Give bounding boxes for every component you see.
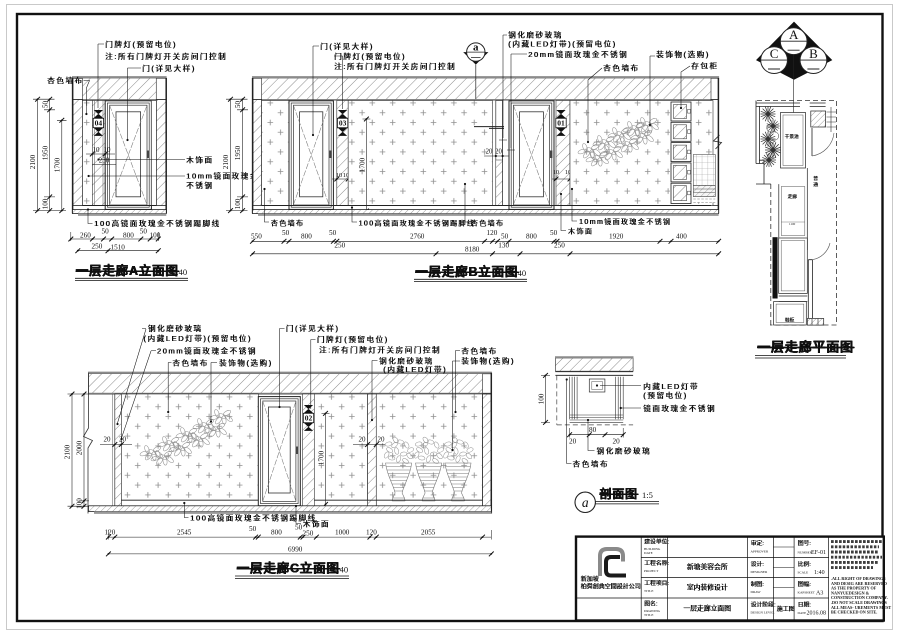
svg-text:PROJECT: PROJECT (644, 569, 659, 573)
svg-text:木饰面: 木饰面 (568, 227, 593, 236)
svg-text:存包柜: 存包柜 (691, 61, 718, 71)
svg-text:新塘美容会所: 新塘美容会所 (687, 562, 728, 571)
svg-text:杏色墙布: 杏色墙布 (471, 219, 505, 228)
svg-text:DATE: DATE (644, 551, 653, 555)
svg-text:10mm镜面玫瑰金不锈钢: 10mm镜面玫瑰金不锈钢 (579, 217, 671, 226)
svg-text:DESIGNER: DESIGNER (751, 570, 769, 574)
svg-text:a: a (582, 495, 589, 510)
svg-text:走廊: 走廊 (788, 193, 798, 200)
svg-text:(预留电位): (预留电位) (643, 390, 688, 400)
svg-text:800: 800 (526, 233, 537, 241)
svg-text:50: 50 (249, 525, 257, 533)
svg-text:设计阶段:: 设计阶段: (751, 601, 776, 609)
svg-text:20: 20 (359, 436, 367, 444)
svg-text:1700: 1700 (318, 450, 326, 465)
svg-text:木饰面: 木饰面 (186, 155, 213, 165)
svg-text:20mm镜面玫瑰金不锈钢: 20mm镜面玫瑰金不锈钢 (528, 49, 628, 59)
svg-text:注:所有门牌灯开关房间门控制: 注:所有门牌灯开关房间门控制 (105, 51, 227, 61)
svg-text:120: 120 (366, 529, 377, 537)
svg-text:TITLE: TITLE (644, 589, 653, 593)
svg-text:EF-01: EF-01 (811, 550, 826, 556)
svg-text:装饰物(选购): 装饰物(选购) (656, 49, 710, 59)
svg-text:250: 250 (554, 242, 565, 250)
svg-text:钢化磨砂玻璃: 钢化磨砂玻璃 (596, 446, 651, 456)
svg-text:杏色墙布: 杏色墙布 (271, 219, 305, 228)
svg-text:工程项目:: 工程项目: (644, 579, 669, 587)
svg-text:400: 400 (676, 233, 687, 241)
svg-text:250: 250 (303, 530, 314, 538)
svg-text:50: 50 (234, 101, 242, 109)
svg-text:一层走廊立面图: 一层走廊立面图 (683, 604, 731, 613)
svg-text:钢化磨砂玻璃: 钢化磨砂玻璃 (148, 323, 203, 333)
svg-text:1510: 1510 (111, 244, 126, 252)
svg-text:不锈钢: 不锈钢 (186, 180, 213, 190)
svg-text:10: 10 (336, 172, 343, 179)
svg-text:杏色墙布: 杏色墙布 (47, 75, 83, 85)
svg-text:10: 10 (104, 146, 112, 154)
svg-text:门牌灯(预留电位): 门牌灯(预留电位) (334, 51, 406, 61)
svg-text:剖面图: 剖面图 (599, 486, 637, 501)
svg-text:1:5: 1:5 (642, 490, 653, 500)
svg-text:装饰物(选购): 装饰物(选购) (461, 356, 515, 366)
svg-text:一层走廊B立面图: 一层走廊B立面图 (415, 264, 518, 279)
svg-text:钢化磨砂玻璃: 钢化磨砂玻璃 (508, 30, 563, 40)
svg-text:100: 100 (234, 198, 242, 209)
svg-text:SCALE: SCALE (798, 571, 809, 575)
svg-text:8180: 8180 (465, 246, 480, 254)
svg-text:TITLE: TITLE (644, 613, 653, 617)
svg-text:20mm镜面玫瑰金不锈钢: 20mm镜面玫瑰金不锈钢 (157, 346, 257, 356)
svg-text:20: 20 (613, 438, 621, 446)
svg-text:建设单位:: 建设单位: (644, 538, 669, 546)
svg-text:10mm镜面玫瑰金: 10mm镜面玫瑰金 (186, 171, 259, 181)
svg-text:100: 100 (537, 393, 545, 404)
svg-text:50: 50 (102, 228, 110, 236)
svg-text:图幅:: 图幅: (798, 580, 812, 588)
svg-text:20: 20 (486, 149, 493, 156)
svg-text:图号:: 图号: (798, 539, 812, 547)
svg-text:1:40: 1:40 (333, 565, 348, 575)
svg-text:APPROVER: APPROVER (751, 550, 769, 554)
svg-text:杏色墙布: 杏色墙布 (603, 63, 639, 73)
svg-text:100高镜面玫瑰金不锈钢踢脚线: 100高镜面玫瑰金不锈钢踢脚线 (94, 218, 221, 228)
svg-text:550: 550 (251, 233, 262, 241)
svg-text:100高镜面玫瑰金不锈钢踢脚线: 100高镜面玫瑰金不锈钢踢脚线 (358, 219, 475, 228)
svg-text:250: 250 (92, 243, 103, 251)
svg-text:50: 50 (140, 228, 148, 236)
svg-text:装饰物(选购): 装饰物(选购) (219, 358, 273, 368)
svg-text:鞋柜: 鞋柜 (785, 317, 795, 324)
svg-text:1700: 1700 (53, 157, 61, 172)
svg-text:DATE: DATE (798, 611, 807, 615)
svg-text:柏舜創典空間設計公司: 柏舜創典空間設計公司 (581, 583, 641, 591)
svg-text:1:40: 1:40 (814, 570, 825, 576)
svg-text:审定:: 审定: (751, 539, 765, 547)
svg-text:DRAW: DRAW (751, 590, 762, 594)
svg-text:2545: 2545 (177, 529, 192, 537)
svg-text:1000: 1000 (335, 529, 350, 537)
svg-text:日期:: 日期: (798, 602, 812, 609)
svg-text:02: 02 (305, 414, 313, 423)
svg-text:50: 50 (501, 233, 509, 241)
svg-text:10: 10 (553, 169, 559, 176)
svg-text:普: 普 (813, 175, 818, 182)
svg-text:1:40: 1:40 (172, 267, 187, 277)
svg-text:1920: 1920 (609, 233, 624, 241)
svg-text:比例:: 比例: (798, 560, 812, 568)
svg-text:杏色墙布: 杏色墙布 (172, 358, 208, 368)
svg-text:100: 100 (76, 498, 84, 509)
svg-text:50: 50 (282, 229, 290, 237)
svg-text:100: 100 (150, 231, 161, 239)
svg-text:120: 120 (105, 529, 116, 537)
svg-text:2100: 2100 (64, 444, 72, 459)
svg-text:(内藏LED灯带): (内藏LED灯带) (383, 364, 447, 374)
svg-text:施工图: 施工图 (777, 605, 795, 613)
svg-text:干景池: 干景池 (785, 133, 799, 140)
svg-text:B: B (809, 46, 818, 61)
svg-text:(内藏LED灯带)(预留电位): (内藏LED灯带)(预留电位) (508, 39, 617, 49)
svg-text:800: 800 (123, 231, 134, 239)
svg-text:DESIGN LEVEL: DESIGN LEVEL (751, 611, 775, 615)
svg-text:1700: 1700 (359, 157, 367, 172)
svg-text:20: 20 (569, 438, 577, 446)
svg-text:门(详见大样): 门(详见大样) (320, 41, 374, 51)
svg-text:80: 80 (589, 426, 597, 434)
svg-text:门牌灯(预留电位): 门牌灯(预留电位) (105, 39, 177, 49)
svg-text:门牌灯(预留电位): 门牌灯(预留电位) (317, 334, 389, 344)
svg-text:04: 04 (95, 119, 103, 128)
svg-text:钢化磨砂玻璃: 钢化磨砂玻璃 (379, 356, 434, 366)
svg-text:800: 800 (301, 233, 312, 241)
svg-text:50: 50 (329, 229, 337, 237)
svg-text:2100: 2100 (29, 154, 37, 169)
svg-text:01: 01 (557, 119, 565, 128)
svg-text:一层走廊A立面图: 一层走廊A立面图 (76, 263, 179, 278)
svg-text:一层走廊C立面图: 一层走廊C立面图 (237, 561, 340, 576)
svg-text:20: 20 (495, 149, 502, 156)
svg-text:C: C (770, 46, 779, 61)
svg-text:03: 03 (339, 119, 347, 128)
svg-text:2100: 2100 (222, 154, 230, 169)
svg-text:门(详见大样): 门(详见大样) (142, 63, 196, 73)
svg-text:图名:: 图名: (644, 600, 658, 608)
svg-text:800: 800 (271, 529, 282, 537)
svg-text:门(详见大样): 门(详见大样) (286, 323, 340, 333)
svg-text:260: 260 (80, 231, 91, 239)
svg-text:A3: A3 (816, 590, 823, 596)
svg-text:木饰面: 木饰面 (303, 519, 330, 529)
svg-text:100: 100 (41, 198, 49, 209)
svg-text:镜面玫瑰金不锈钢: 镜面玫瑰金不锈钢 (643, 403, 716, 413)
svg-text:250: 250 (334, 242, 345, 250)
svg-text:50: 50 (550, 229, 558, 237)
svg-text:20: 20 (119, 436, 127, 444)
svg-text:工程名称:: 工程名称: (644, 559, 669, 567)
svg-text:室内装修设计: 室内装修设计 (687, 583, 728, 592)
svg-text:KAPSHEET: KAPSHEET (798, 591, 816, 595)
svg-text:230: 230 (99, 157, 110, 165)
svg-text:A: A (789, 27, 799, 42)
svg-text:BE CHECKED ON SITE.: BE CHECKED ON SITE. (831, 610, 877, 615)
svg-text:通: 通 (813, 181, 818, 188)
svg-text:杏色墙布: 杏色墙布 (461, 346, 497, 356)
svg-text:杏色墙布: 杏色墙布 (572, 459, 608, 469)
svg-text:注:所有门牌灯开关房间门控制: 注:所有门牌灯开关房间门控制 (319, 345, 441, 355)
svg-text:2000: 2000 (76, 440, 84, 455)
svg-text:注:所有门牌灯开关房间门控制: 注:所有门牌灯开关房间门控制 (334, 61, 456, 71)
svg-text:1950: 1950 (234, 145, 242, 160)
svg-text:50: 50 (295, 524, 303, 532)
svg-text:设计:: 设计: (751, 560, 765, 568)
svg-text:20: 20 (104, 436, 112, 444)
svg-text:1100: 1100 (789, 222, 796, 226)
svg-text:50: 50 (41, 101, 49, 109)
svg-text:6990: 6990 (288, 545, 303, 553)
svg-text:(内藏LED灯带)(预留电位): (内藏LED灯带)(预留电位) (143, 333, 252, 343)
svg-text:内藏LED灯带: 内藏LED灯带 (643, 381, 699, 391)
svg-text:制图:: 制图: (751, 580, 765, 588)
svg-text:1:40: 1:40 (511, 268, 526, 278)
svg-text:一层走廊平面图: 一层走廊平面图 (757, 340, 854, 355)
svg-text:120: 120 (487, 229, 498, 237)
svg-text:1950: 1950 (41, 145, 49, 160)
svg-text:a: a (473, 42, 479, 54)
svg-text:2016.08: 2016.08 (807, 611, 827, 617)
svg-text:100高镜面玫瑰金不锈钢踢脚线: 100高镜面玫瑰金不锈钢踢脚线 (190, 513, 317, 523)
svg-text:2055: 2055 (421, 529, 436, 537)
svg-text:130: 130 (498, 242, 509, 250)
svg-text:新加坡: 新加坡 (581, 575, 599, 583)
svg-text:2760: 2760 (410, 233, 425, 241)
